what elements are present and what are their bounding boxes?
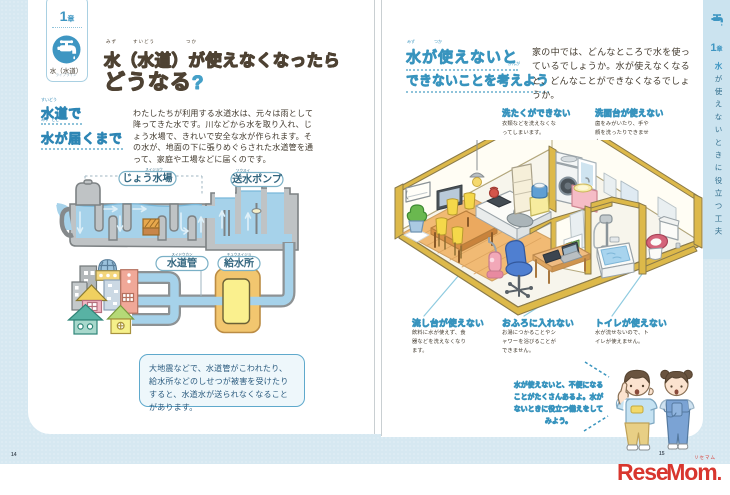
svg-text:送水ポンプ: 送水ポンプ [232,173,283,186]
svg-text:スイジョウ: スイジョウ [145,167,163,172]
svg-text:キュウスイジョ: キュウスイジョ [227,252,252,257]
svg-text:給水所: 給水所 [223,257,254,270]
svg-text:スイドウカン: スイドウカン [172,252,193,257]
svg-text:ソウスイ: ソウスイ [236,168,250,173]
svg-text:じょう水場: じょう水場 [123,172,173,185]
svg-text:水道管: 水道管 [166,257,197,270]
